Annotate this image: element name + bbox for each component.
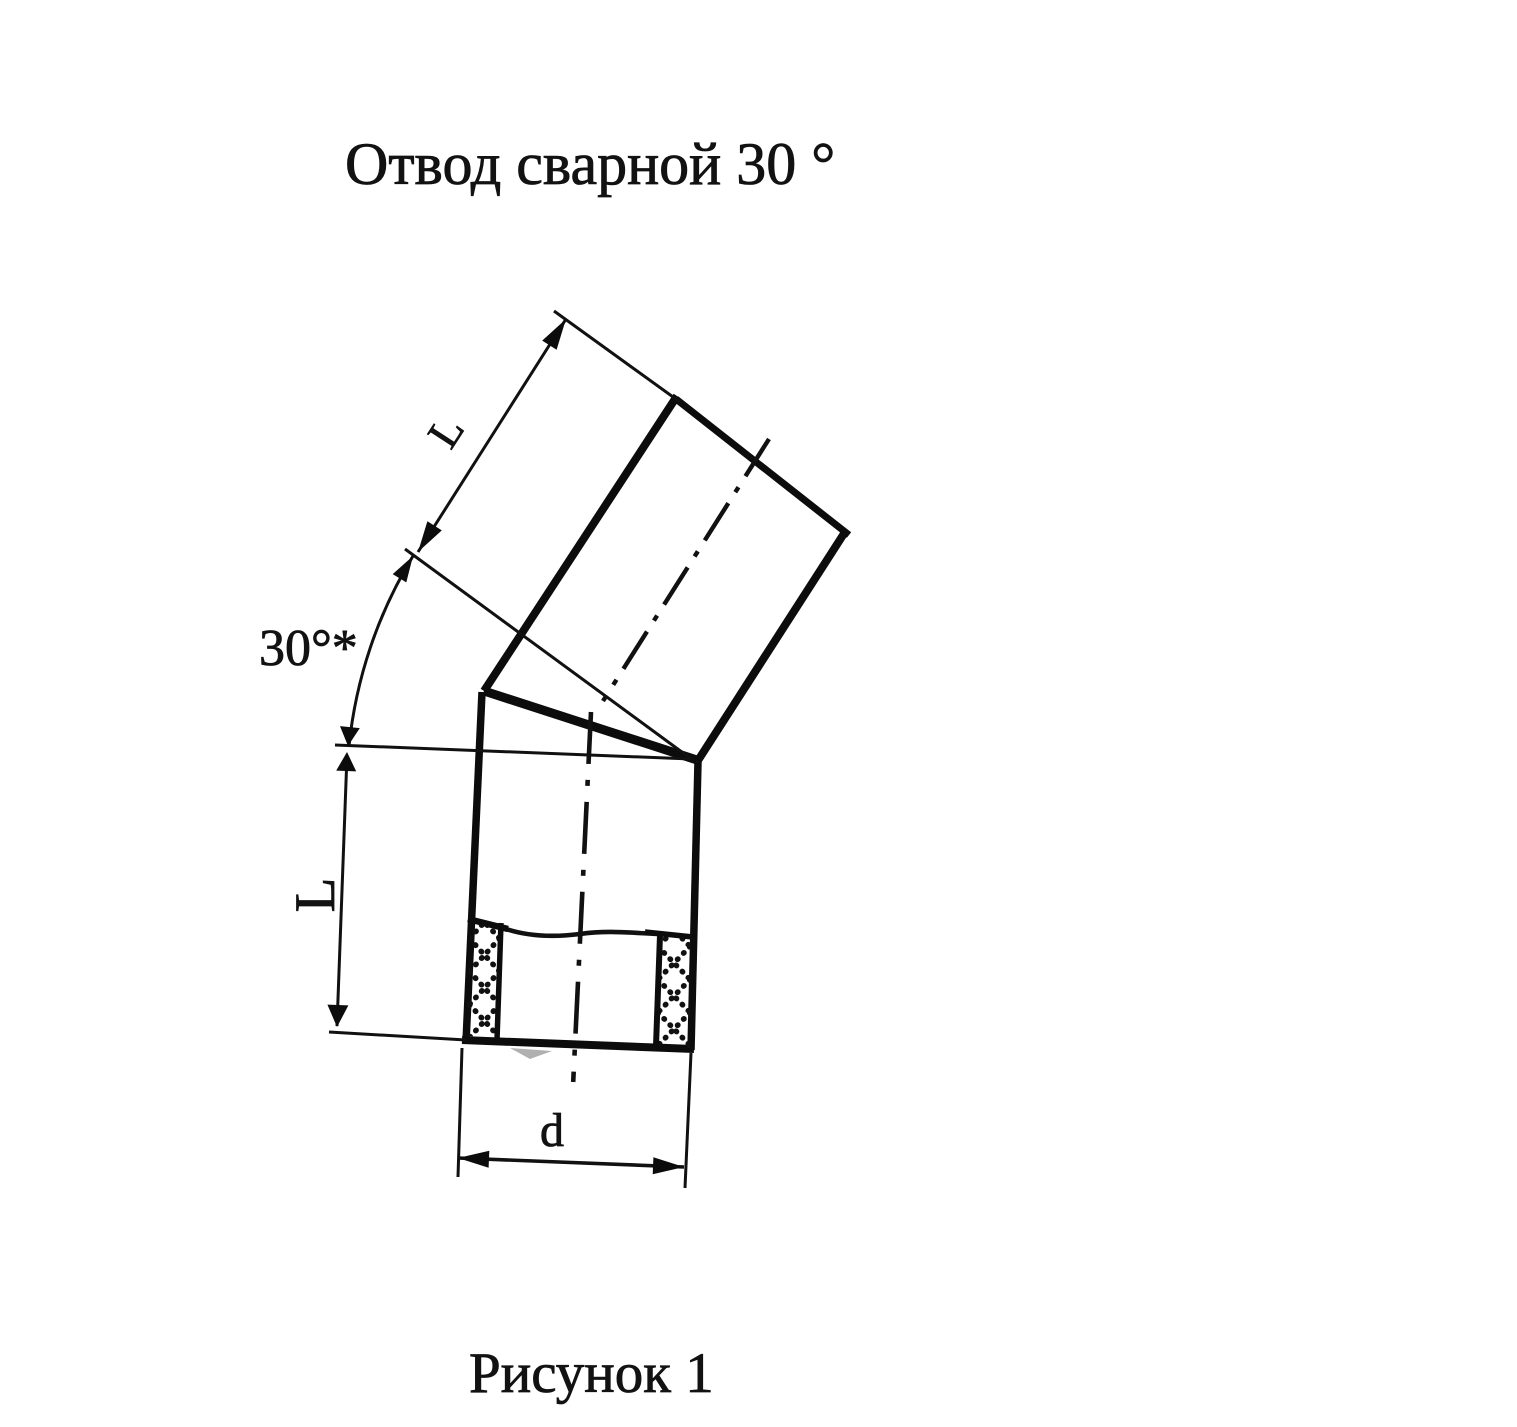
svg-text:Отвод сварной 30 °: Отвод сварной 30 ° bbox=[345, 131, 835, 197]
svg-text:30°*: 30°* bbox=[259, 620, 358, 677]
svg-text:Рисунок 1: Рисунок 1 bbox=[469, 1342, 714, 1405]
svg-text:L: L bbox=[284, 878, 347, 913]
svg-text:d: d bbox=[540, 1104, 564, 1157]
svg-text:L: L bbox=[418, 407, 474, 456]
